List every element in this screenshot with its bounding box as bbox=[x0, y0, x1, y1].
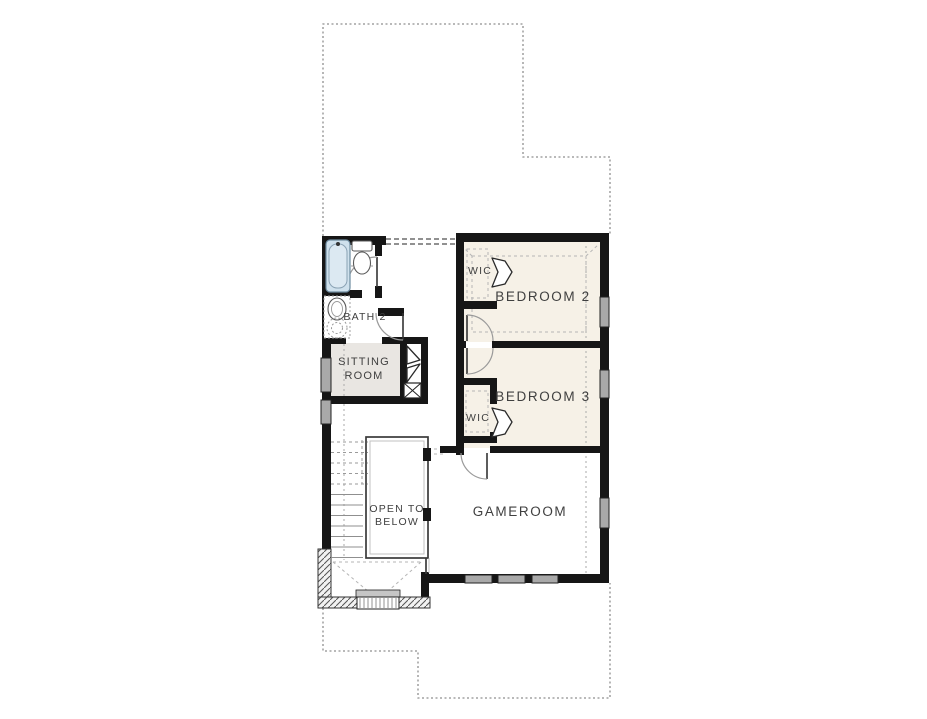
label-sitting-line1: SITTING bbox=[326, 356, 402, 370]
label-open-below-line1: OPEN TO bbox=[357, 503, 437, 516]
linen-bifold-upper bbox=[407, 346, 420, 364]
label-sitting-line2: ROOM bbox=[326, 370, 402, 384]
floor-plan-canvas: BATH 2 SITTING ROOM WIC BEDROOM 2 WIC BE… bbox=[0, 0, 927, 719]
label-gameroom: GAMEROOM bbox=[455, 504, 585, 521]
label-bedroom2: BEDROOM 2 bbox=[483, 289, 603, 306]
label-sitting-room: SITTING ROOM bbox=[326, 356, 402, 384]
linen-bifold-lower bbox=[407, 364, 420, 382]
bathtub bbox=[326, 240, 350, 292]
label-wic-bedroom2: WIC bbox=[462, 265, 498, 278]
toilet bbox=[352, 241, 372, 274]
gameroom-door bbox=[461, 453, 487, 479]
linen-cabinet bbox=[404, 383, 421, 398]
label-wic-bedroom3: WIC bbox=[460, 412, 496, 425]
label-open-below-line2: BELOW bbox=[357, 516, 437, 529]
stairwell-window bbox=[357, 597, 399, 609]
staircase bbox=[331, 440, 368, 558]
label-bedroom3: BEDROOM 3 bbox=[483, 389, 603, 406]
floor-plan-drawing bbox=[0, 0, 927, 719]
label-bath2: BATH 2 bbox=[336, 311, 394, 324]
label-open-to-below: OPEN TO BELOW bbox=[357, 503, 437, 529]
